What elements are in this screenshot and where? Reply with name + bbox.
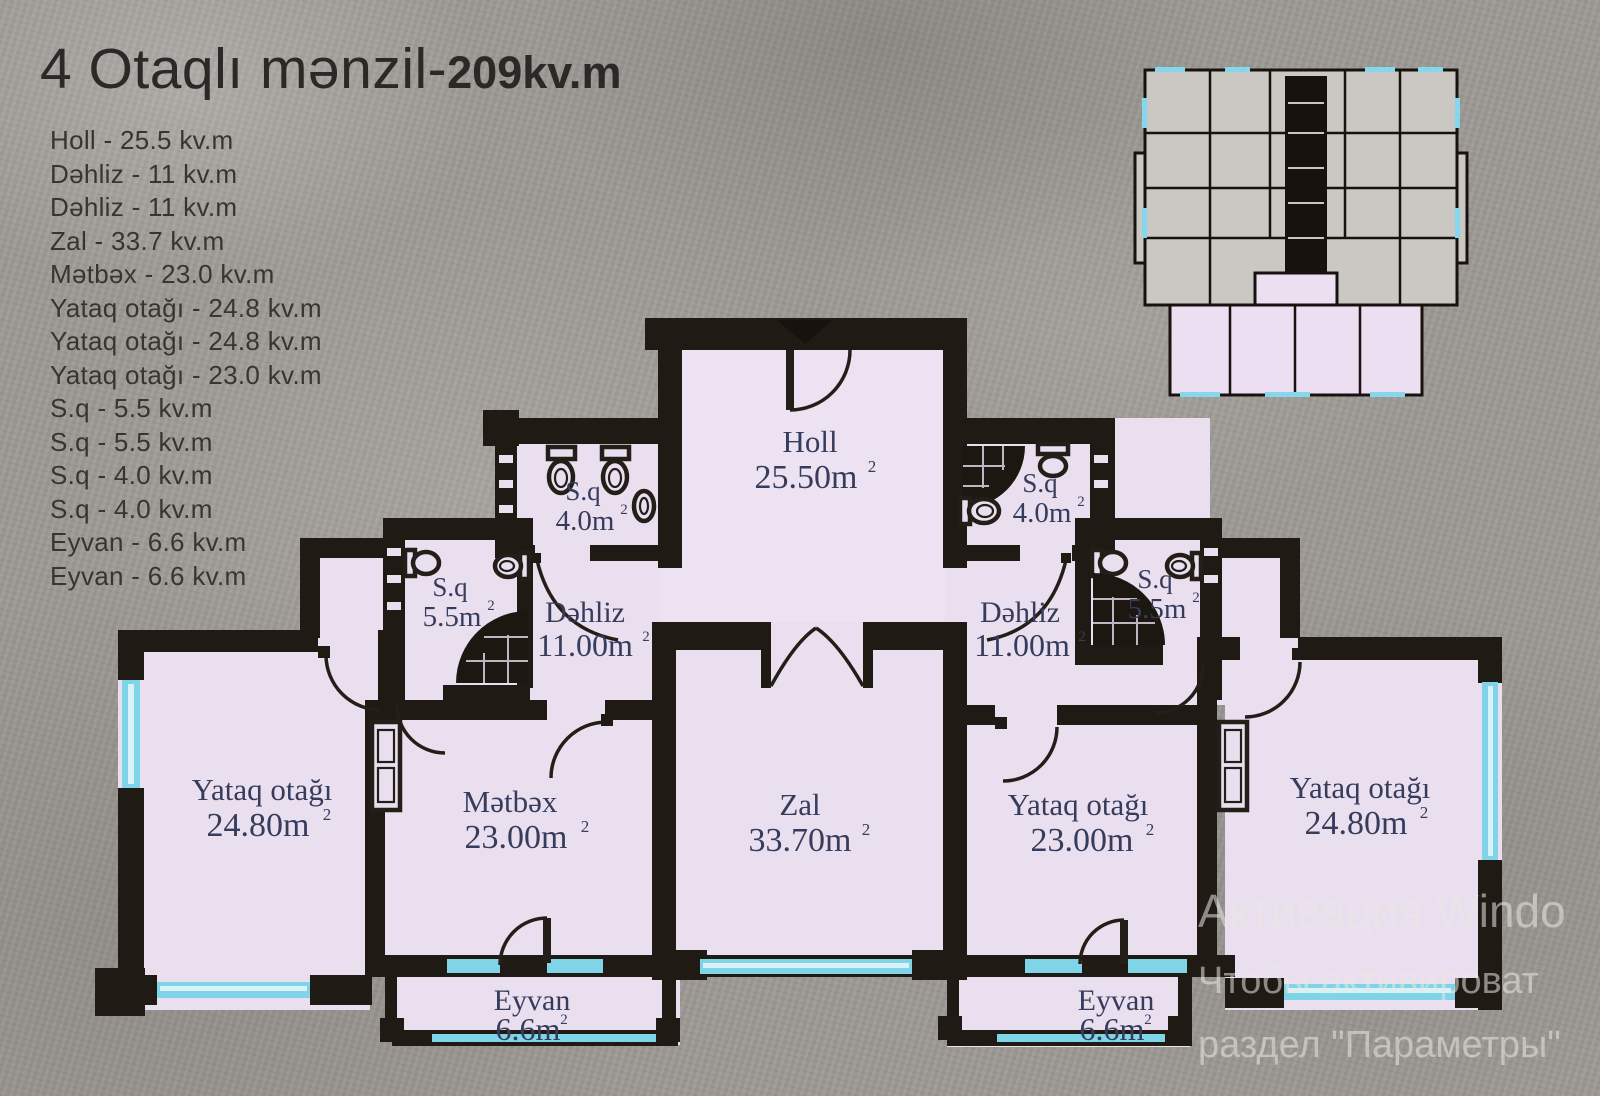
mini-floor-plan xyxy=(1135,67,1467,397)
label-sq55-right-area: 5.5m xyxy=(1128,593,1187,625)
window-strip xyxy=(1025,959,1082,973)
svg-text:2: 2 xyxy=(560,1012,568,1028)
label-metbex-area: 23.00m xyxy=(465,819,568,856)
window-strip xyxy=(547,959,603,973)
svg-text:2: 2 xyxy=(1192,590,1200,606)
svg-text:2: 2 xyxy=(1078,629,1086,645)
svg-text:2: 2 xyxy=(1420,803,1429,822)
sink-icon xyxy=(1092,550,1126,576)
label-sq40-right-area: 4.0m xyxy=(1013,497,1072,529)
floor-plan-page: 4 Otaqlı mənzil-209kv.m Holl - 25.5 kv.m… xyxy=(0,0,1600,1096)
label-yataq-left: Yataq otağı xyxy=(192,772,333,807)
svg-text:2: 2 xyxy=(581,817,590,836)
window-strip xyxy=(1128,959,1187,973)
label-yataq-right: Yataq otağı xyxy=(1290,770,1431,805)
svg-text:2: 2 xyxy=(1077,494,1085,510)
sink-icon xyxy=(634,491,654,521)
toilet-icon xyxy=(960,498,999,524)
label-dehliz-right: Dəhliz xyxy=(980,596,1060,629)
label-sq40-right: S.q xyxy=(1022,468,1058,498)
label-metbex: Mətbəx xyxy=(463,784,558,819)
label-sq55-left: S.q xyxy=(432,572,468,602)
windows-activation-watermark-line3: раздел "Параметры" xyxy=(1198,1024,1561,1067)
wardrobe-icon xyxy=(1219,722,1247,810)
label-eyvan-left-area: 6.6m xyxy=(496,1011,561,1047)
svg-text:2: 2 xyxy=(323,805,332,824)
label-yataq-left-area: 24.80m xyxy=(207,807,310,844)
windows-activation-watermark-line2: Чтобы активироват xyxy=(1198,960,1539,1003)
label-zal: Zal xyxy=(779,787,820,822)
svg-text:2: 2 xyxy=(487,598,495,614)
svg-text:2: 2 xyxy=(642,629,650,645)
wardrobe-icon xyxy=(372,722,400,810)
label-holl-area: 25.50m xyxy=(755,459,858,496)
label-yataq-right-area: 24.80m xyxy=(1305,805,1408,842)
label-yataq-mid: Yataq otağı xyxy=(1008,787,1149,822)
label-holl: Holl xyxy=(782,424,837,459)
svg-text:2: 2 xyxy=(868,457,877,476)
toilet-icon xyxy=(495,553,529,579)
label-sq55-right: S.q xyxy=(1137,564,1173,594)
svg-text:2: 2 xyxy=(862,820,871,839)
label-sq40-left: S.q xyxy=(565,476,601,506)
window-strip xyxy=(447,959,500,973)
label-sq40-left-area: 4.0m xyxy=(556,505,615,537)
label-dehliz-left: Dəhliz xyxy=(545,596,625,629)
stair-core xyxy=(1285,76,1327,301)
label-eyvan-right-area: 6.6m xyxy=(1080,1011,1145,1047)
label-sq55-left-area: 5.5m xyxy=(423,601,482,633)
svg-text:2: 2 xyxy=(1144,1012,1152,1028)
windows-activation-watermark-line1: Активация Windo xyxy=(1198,884,1566,938)
svg-text:2: 2 xyxy=(1146,820,1155,839)
label-yataq-mid-area: 23.00m xyxy=(1031,822,1134,859)
label-zal-area: 33.70m xyxy=(749,822,852,859)
svg-text:2: 2 xyxy=(620,502,628,518)
label-dehliz-right-area: 11.00m xyxy=(974,627,1070,663)
label-dehliz-left-area: 11.00m xyxy=(537,627,633,663)
toilet-icon xyxy=(602,447,629,493)
